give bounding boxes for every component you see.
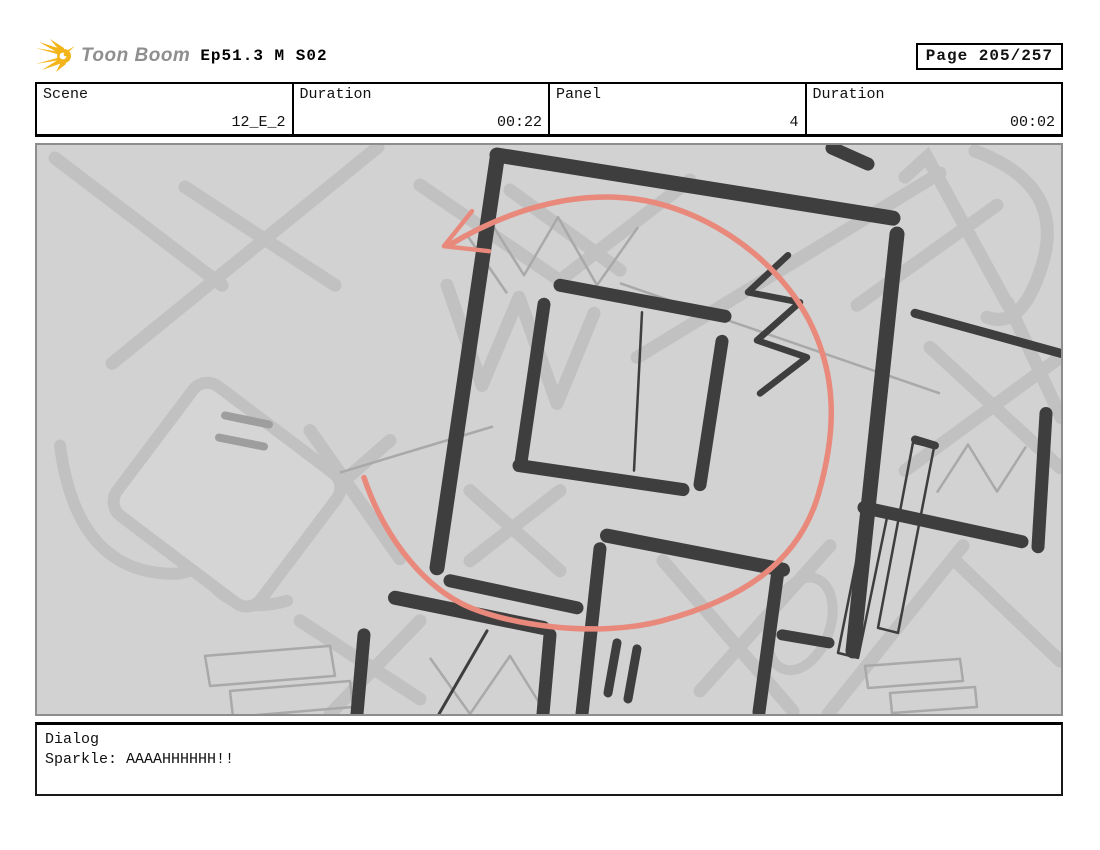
top-bar: Toon Boom Ep51.3 M S02 Page 205/257 [35,38,1063,74]
scene-value: 12_E_2 [43,114,286,131]
toonboom-logo-icon [35,39,77,73]
shot-info-table: Scene 12_E_2 Duration 00:22 Panel 4 Dura… [35,82,1063,137]
panel-value: 4 [556,114,799,131]
scene-cell: Scene 12_E_2 [37,84,292,134]
scene-duration-cell: Duration 00:22 [292,84,549,134]
panel-duration-value: 00:02 [813,114,1056,131]
dialog-box: Dialog Sparkle: AAAAHHHHHH!! [35,722,1063,796]
page-number-badge: Page 205/257 [916,43,1063,70]
brand-name: Toon Boom [81,45,190,67]
panel-duration-label: Duration [813,86,1056,103]
storyboard-panel-frame [35,143,1063,716]
storyboard-sketch [37,145,1061,714]
scene-duration-label: Duration [300,86,543,103]
dialog-caption-text: Sparkle: AAAAHHHHHH!! [45,750,1053,770]
panel-cell: Panel 4 [548,84,805,134]
episode-title: Ep51.3 M S02 [200,47,327,65]
panel-duration-cell: Duration 00:02 [805,84,1062,134]
dialog-caption-label: Dialog [45,730,1053,750]
scene-duration-value: 00:22 [300,114,543,131]
panel-label: Panel [556,86,799,103]
scene-label: Scene [43,86,286,103]
brand: Toon Boom [35,39,190,73]
storyboard-page: Toon Boom Ep51.3 M S02 Page 205/257 Scen… [0,0,1100,850]
